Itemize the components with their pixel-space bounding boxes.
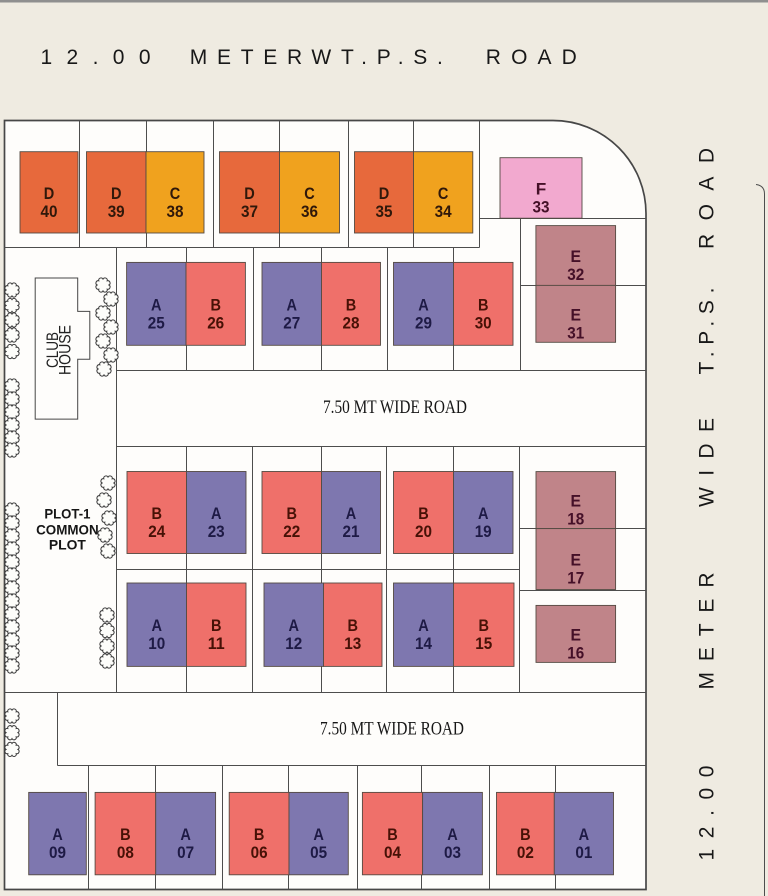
svg-text:33: 33 (533, 197, 550, 216)
svg-text:B: B (520, 825, 531, 844)
svg-text:D: D (111, 184, 122, 203)
svg-text:02: 02 (517, 843, 534, 862)
svg-text:E: E (571, 551, 582, 570)
svg-text:11: 11 (208, 634, 225, 653)
svg-text:13: 13 (344, 634, 361, 653)
svg-text:38: 38 (167, 202, 184, 221)
svg-text:10: 10 (148, 634, 165, 653)
svg-text:B: B (210, 295, 221, 314)
svg-text:05: 05 (310, 843, 327, 862)
svg-text:B: B (418, 504, 429, 523)
svg-text:23: 23 (208, 522, 225, 541)
svg-text:A: A (289, 616, 300, 635)
svg-text:14: 14 (415, 634, 432, 653)
svg-text:16: 16 (567, 643, 584, 662)
svg-text:26: 26 (207, 313, 224, 332)
svg-text:07: 07 (177, 843, 194, 862)
svg-text:03: 03 (444, 843, 461, 862)
svg-text:39: 39 (108, 202, 125, 221)
svg-text:21: 21 (343, 522, 360, 541)
svg-text:20: 20 (415, 522, 432, 541)
svg-text:A: A (579, 825, 590, 844)
svg-text:B: B (478, 295, 489, 314)
svg-text:18: 18 (567, 510, 584, 529)
svg-text:PLOT-1: PLOT-1 (44, 507, 90, 522)
svg-text:C: C (170, 184, 181, 203)
svg-text:C: C (304, 184, 315, 203)
svg-text:25: 25 (148, 313, 165, 332)
svg-text:37: 37 (241, 202, 258, 221)
svg-text:15: 15 (475, 634, 492, 653)
svg-text:09: 09 (49, 843, 66, 862)
svg-text:A: A (478, 504, 489, 523)
svg-text:A: A (346, 504, 357, 523)
svg-text:32: 32 (567, 265, 584, 284)
svg-text:A: A (418, 616, 429, 635)
svg-text:E: E (571, 305, 582, 324)
svg-text:B: B (387, 825, 398, 844)
svg-text:08: 08 (117, 843, 134, 862)
svg-text:A: A (211, 504, 222, 523)
svg-text:B: B (346, 295, 357, 314)
svg-text:7.50 MT WIDE ROAD: 7.50 MT WIDE ROAD (323, 397, 467, 418)
svg-text:31: 31 (567, 323, 584, 342)
svg-text:F: F (536, 179, 547, 198)
svg-text:C: C (438, 184, 449, 203)
svg-text:30: 30 (475, 313, 492, 332)
svg-text:B: B (479, 616, 490, 635)
svg-text:01: 01 (575, 843, 592, 862)
svg-text:E: E (571, 492, 582, 511)
svg-text:22: 22 (283, 522, 300, 541)
svg-text:24: 24 (148, 522, 165, 541)
svg-text:E: E (571, 625, 582, 644)
svg-text:A: A (313, 825, 324, 844)
svg-text:29: 29 (415, 313, 432, 332)
svg-text:40: 40 (41, 202, 58, 221)
svg-text:12: 12 (285, 634, 302, 653)
svg-text:17: 17 (567, 569, 584, 588)
svg-text:D: D (379, 184, 390, 203)
svg-text:COMMON: COMMON (36, 522, 99, 537)
svg-text:A: A (287, 295, 298, 314)
svg-text:36: 36 (301, 202, 318, 221)
svg-text:D: D (244, 184, 255, 203)
svg-text:B: B (211, 616, 222, 635)
svg-text:A: A (180, 825, 191, 844)
svg-text:E: E (571, 247, 582, 266)
svg-text:28: 28 (343, 313, 360, 332)
svg-text:B: B (152, 504, 163, 523)
svg-text:A: A (151, 295, 162, 314)
svg-text:A: A (418, 295, 429, 314)
svg-text:27: 27 (283, 313, 300, 332)
svg-text:D: D (44, 184, 55, 203)
svg-text:A: A (152, 616, 163, 635)
svg-text:34: 34 (435, 202, 452, 221)
svg-text:B: B (254, 825, 265, 844)
svg-text:04: 04 (384, 843, 401, 862)
svg-text:A: A (52, 825, 63, 844)
svg-text:PLOT: PLOT (49, 538, 87, 553)
svg-text:19: 19 (475, 522, 492, 541)
svg-text:06: 06 (251, 843, 268, 862)
svg-text:B: B (120, 825, 131, 844)
svg-text:35: 35 (376, 202, 393, 221)
svg-text:HOUSE: HOUSE (57, 325, 75, 375)
svg-text:A: A (447, 825, 458, 844)
svg-text:B: B (348, 616, 359, 635)
svg-text:B: B (287, 504, 298, 523)
svg-text:7.50 MT WIDE ROAD: 7.50 MT WIDE ROAD (320, 719, 464, 740)
